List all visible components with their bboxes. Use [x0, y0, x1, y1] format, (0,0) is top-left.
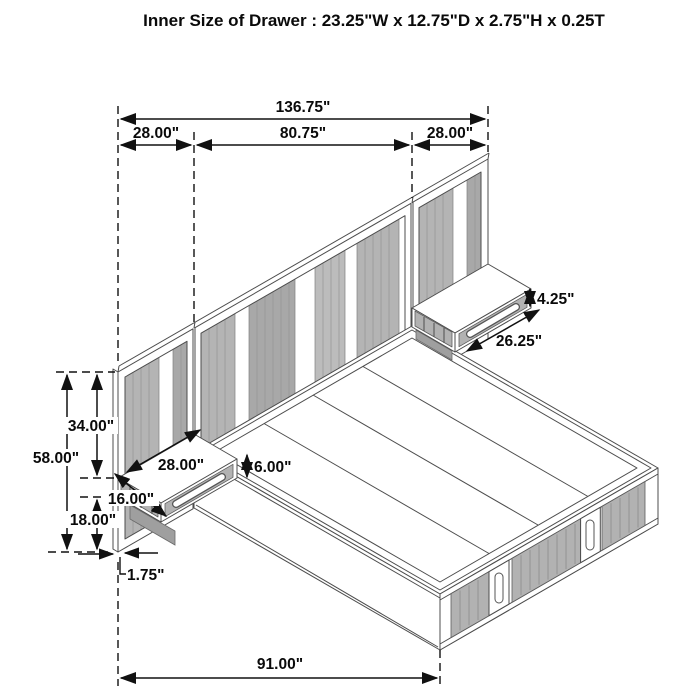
footboard-drawer-handle-2	[586, 520, 594, 550]
dim-label-floor-to-nightstand: 18.00"	[70, 512, 116, 529]
dim-label-overall-width: 136.75"	[276, 99, 331, 116]
diagram-page: 136.75" 28.00" 80.75" 28.00" 58.00" 34.0…	[0, 0, 700, 700]
dim-label-right-wing: 28.00"	[427, 125, 473, 142]
dim-leader-thickness	[120, 557, 126, 574]
footboard-drawer-handle-1	[495, 573, 503, 603]
dim-label-nightstand-depth: 16.00"	[108, 491, 154, 508]
page-title: Inner Size of Drawer : 23.25"W x 12.75"D…	[143, 11, 605, 30]
dim-label-nightstand-width: 28.00"	[158, 457, 204, 474]
dim-label-left-wing: 28.00"	[133, 125, 179, 142]
dim-label-panel-height: 58.00"	[33, 450, 79, 467]
dim-label-thickness: 1.75"	[127, 567, 165, 584]
dim-label-drawer-front-height: 4.25"	[537, 291, 575, 308]
dim-label-top-to-nightstand: 34.00"	[68, 418, 114, 435]
bed-dimension-diagram: 136.75" 28.00" 80.75" 28.00" 58.00" 34.0…	[0, 0, 700, 700]
dim-label-nightstand-height: 6.00"	[254, 459, 292, 476]
dim-label-drawer-width: 26.25"	[496, 333, 542, 350]
dim-label-center-panel: 80.75"	[280, 125, 326, 142]
dim-label-bed-length: 91.00"	[257, 656, 303, 673]
